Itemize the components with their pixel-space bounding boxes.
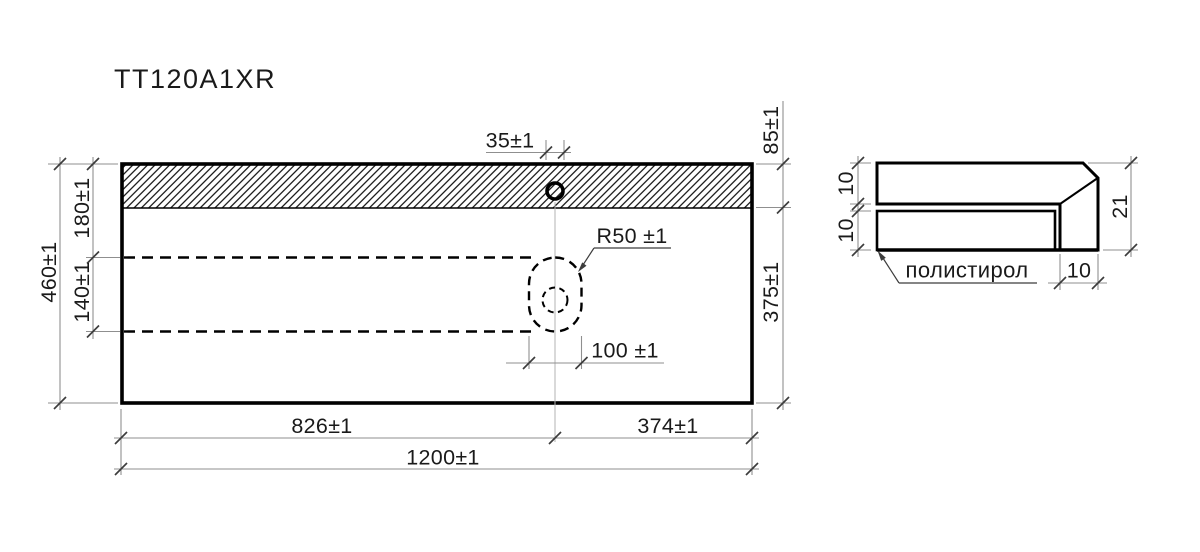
- dim-front-zone-text: 375±1: [759, 261, 783, 322]
- rear-zone-hatch: [122, 164, 752, 208]
- dim-sink-width: 100 ±1: [506, 336, 664, 369]
- technical-drawing-sheet: TT120A1XR 35±1: [0, 0, 1200, 552]
- dim-widths: 826±1 374±1 1200±1: [114, 409, 759, 475]
- dim-total-width-text: 1200±1: [406, 446, 479, 470]
- dim-back-and-front-depth: 85±1 375±1: [756, 101, 791, 410]
- miter-joint-line: [1060, 179, 1097, 205]
- front-view: 35±1 100 ±1 R50 ±1 460±1: [37, 101, 791, 475]
- svg-text:100 ±1: 100 ±1: [591, 339, 658, 363]
- drawing-canvas: TT120A1XR 35±1: [0, 0, 1200, 552]
- dim-sink-offset-and-length: 180±1 140±1: [70, 157, 120, 339]
- svg-text:35±1: 35±1: [486, 129, 535, 153]
- svg-text:460±1: 460±1: [37, 241, 61, 302]
- dim-total-thickness: 21: [1088, 156, 1138, 257]
- dim-layer-thicknesses: 10 10: [834, 156, 871, 257]
- dim-edge-width-text: 10: [1067, 259, 1092, 283]
- dim-sink-radius: R50 ±1: [578, 224, 671, 272]
- material-leader-arrowhead: [878, 251, 886, 261]
- sink-radius-label: R50 ±1: [597, 224, 668, 248]
- leader-arrowhead: [578, 262, 587, 272]
- dim-total-thickness-text: 21: [1108, 194, 1132, 219]
- polystyrene-core-box: [877, 211, 1055, 250]
- dim-hole-diameter: 35±1: [486, 129, 571, 161]
- drawing-title: TT120A1XR: [114, 64, 276, 94]
- dim-edge-strip-width: 10: [1048, 254, 1107, 290]
- section-view: 10 10 21 10 полистирол: [834, 156, 1138, 290]
- dim-width-right-text: 374±1: [637, 414, 698, 438]
- dim-core-layer-text: 10: [834, 218, 858, 243]
- dim-sink-length-text: 140±1: [70, 261, 94, 322]
- dim-back-zone-text: 85±1: [759, 106, 783, 155]
- dim-width-left-text: 826±1: [291, 414, 352, 438]
- dim-sink-offset-text: 180±1: [70, 177, 94, 238]
- dim-top-layer-text: 10: [834, 171, 858, 196]
- core-material-label: полистирол: [906, 258, 1029, 283]
- core-material-callout: полистирол: [878, 251, 1038, 284]
